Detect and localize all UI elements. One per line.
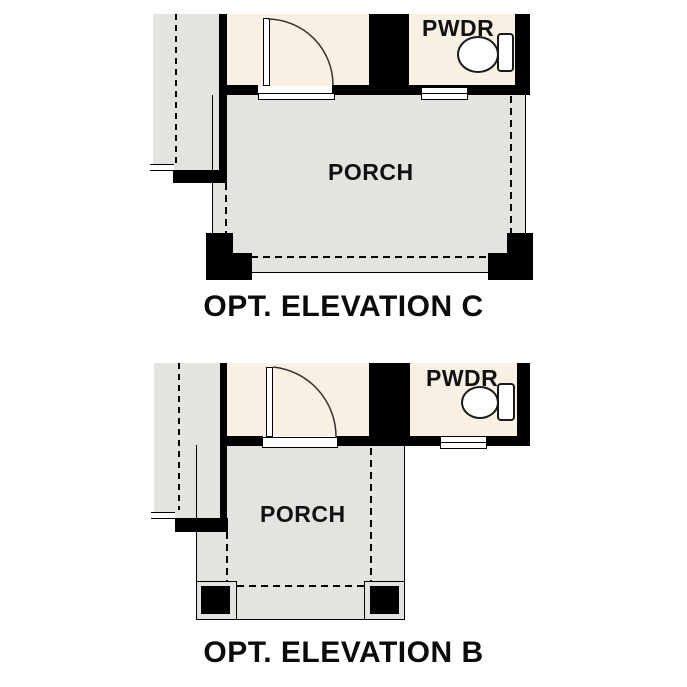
window-symbol: [440, 436, 487, 449]
porch-roofline-dashed-left: [226, 532, 228, 581]
toilet-tank: [497, 383, 515, 421]
side-window-symbol: [151, 512, 175, 519]
wall-left-vertical: [220, 363, 227, 532]
plan-option-b: PWDR PORCH OPT. ELEVATION B: [0, 0, 687, 687]
window-symbol-divider: [440, 442, 487, 444]
wall-corner-bar: [175, 518, 228, 532]
floor-plan-figure: PWDR PORCH OPT. ELEVATION C: [0, 0, 687, 687]
wall-front-right: [336, 436, 530, 446]
side-slab-dashed-line: [178, 363, 180, 510]
corner-post-left: [201, 586, 230, 614]
powder-room-label: PWDR: [426, 365, 498, 392]
door-swing-icon: [260, 360, 345, 445]
porch-label: PORCH: [260, 501, 346, 528]
corner-post-right: [370, 586, 399, 614]
plan-b-caption: OPT. ELEVATION B: [0, 636, 687, 670]
porch-roofline-dashed-bottom: [237, 585, 364, 587]
wall-right-vertical: [517, 363, 530, 446]
wall-front-left: [220, 436, 263, 446]
porch-roofline-dashed-right: [370, 448, 372, 581]
wall-pillar: [369, 363, 410, 446]
